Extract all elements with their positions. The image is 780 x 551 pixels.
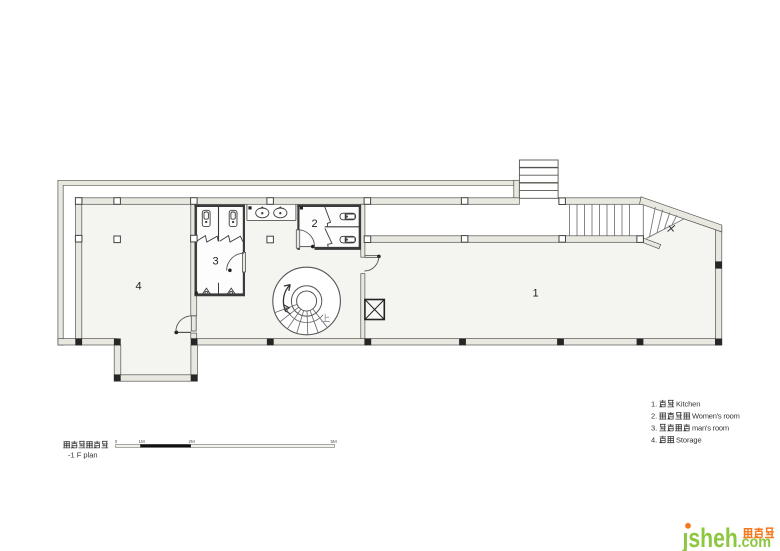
svg-text:4: 4 — [136, 280, 142, 292]
svg-text:3.: 3. — [651, 424, 657, 433]
svg-text:1.: 1. — [651, 400, 657, 409]
svg-text:Kitchen: Kitchen — [676, 400, 700, 409]
svg-text:Women's room: Women's room — [692, 412, 740, 421]
svg-text:-1 F plan: -1 F plan — [68, 451, 98, 460]
svg-text:2: 2 — [312, 218, 318, 230]
svg-text:1: 1 — [533, 288, 539, 300]
svg-text:2M: 2M — [189, 439, 196, 444]
svg-text:2.: 2. — [651, 412, 657, 421]
svg-text:1M: 1M — [139, 439, 146, 444]
svg-text:4.: 4. — [651, 435, 657, 444]
svg-text:5M: 5M — [331, 439, 338, 444]
svg-text:.com: .com — [738, 534, 772, 551]
svg-text:3: 3 — [213, 256, 219, 268]
svg-text:Storage: Storage — [676, 435, 702, 444]
svg-text:man's room: man's room — [692, 424, 729, 433]
